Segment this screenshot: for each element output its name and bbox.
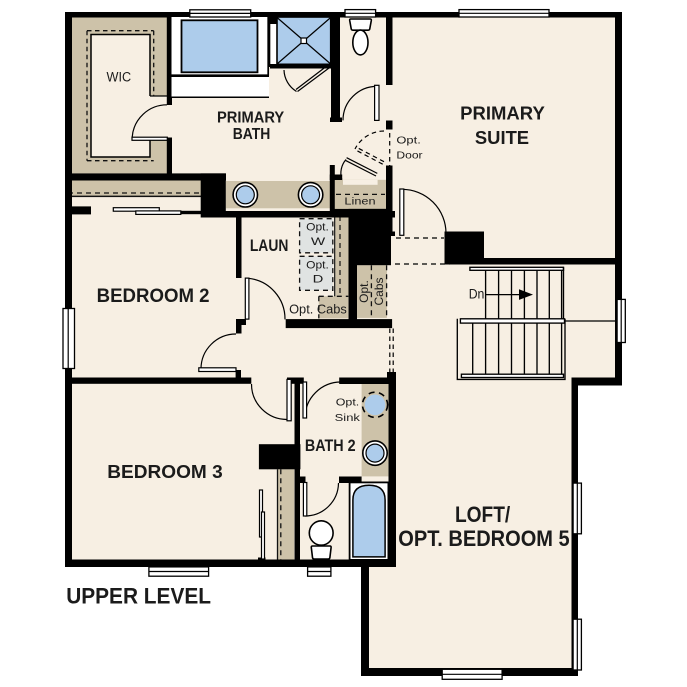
svg-text:Dn: Dn <box>469 287 485 302</box>
svg-text:BATH 2: BATH 2 <box>305 437 356 455</box>
svg-text:Opt.: Opt. <box>306 222 329 234</box>
svg-text:Opt. Cabs: Opt. Cabs <box>289 303 347 317</box>
svg-text:PRIMARY: PRIMARY <box>460 104 545 124</box>
svg-text:Sink: Sink <box>335 412 361 424</box>
svg-text:Opt.: Opt. <box>306 259 329 271</box>
svg-text:BEDROOM 2: BEDROOM 2 <box>97 286 210 307</box>
svg-text:OPT. BEDROOM 5: OPT. BEDROOM 5 <box>398 526 569 551</box>
svg-text:PRIMARY: PRIMARY <box>217 110 285 127</box>
svg-text:Opt.: Opt. <box>357 280 371 303</box>
svg-text:SUITE: SUITE <box>475 128 529 148</box>
svg-text:Opt.: Opt. <box>396 135 420 147</box>
svg-text:Opt.: Opt. <box>336 396 360 408</box>
svg-text:LOFT/: LOFT/ <box>455 502 510 527</box>
svg-text:D: D <box>313 272 324 285</box>
svg-text:BATH: BATH <box>233 126 271 143</box>
svg-text:Door: Door <box>396 150 423 162</box>
svg-text:UPPER LEVEL: UPPER LEVEL <box>66 584 211 609</box>
svg-text:W: W <box>311 235 326 247</box>
svg-text:WIC: WIC <box>107 70 132 86</box>
svg-text:Linen: Linen <box>344 196 375 208</box>
svg-text:LAUN: LAUN <box>250 236 289 255</box>
svg-text:Cabs: Cabs <box>372 277 386 305</box>
svg-text:BEDROOM 3: BEDROOM 3 <box>107 461 222 482</box>
